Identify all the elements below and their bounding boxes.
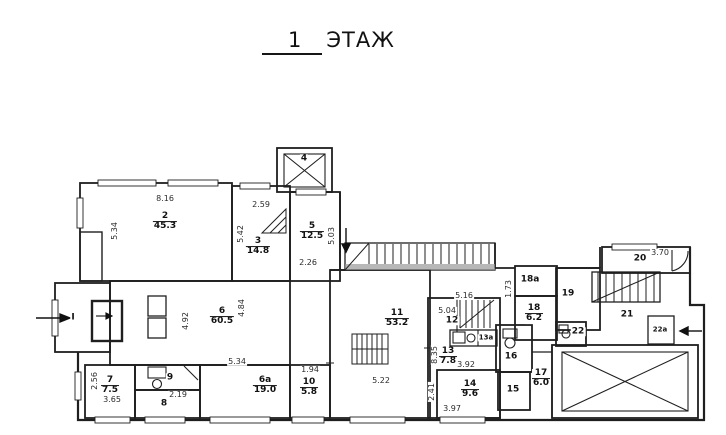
staircase-room11 xyxy=(352,334,388,364)
entrance-arrow-right xyxy=(680,327,702,335)
entrance-arrow-top xyxy=(342,228,350,252)
staircase-top xyxy=(345,243,495,270)
staircase-corner xyxy=(262,209,286,233)
toilet-icon-room22 xyxy=(559,325,570,338)
staircase-room12 xyxy=(460,300,494,328)
fixtures xyxy=(148,325,570,389)
elevator-shaft xyxy=(277,148,332,192)
toilet-icon-room9 xyxy=(148,366,198,389)
light-well xyxy=(552,345,698,418)
windows xyxy=(52,180,657,423)
floorplan-drawing xyxy=(0,0,726,435)
staircase-room19 xyxy=(592,272,660,302)
floor-plan-page: 1 ЭТАЖ xyxy=(0,0,726,435)
walls xyxy=(55,148,704,420)
toilet-icon-room13a xyxy=(453,332,475,343)
